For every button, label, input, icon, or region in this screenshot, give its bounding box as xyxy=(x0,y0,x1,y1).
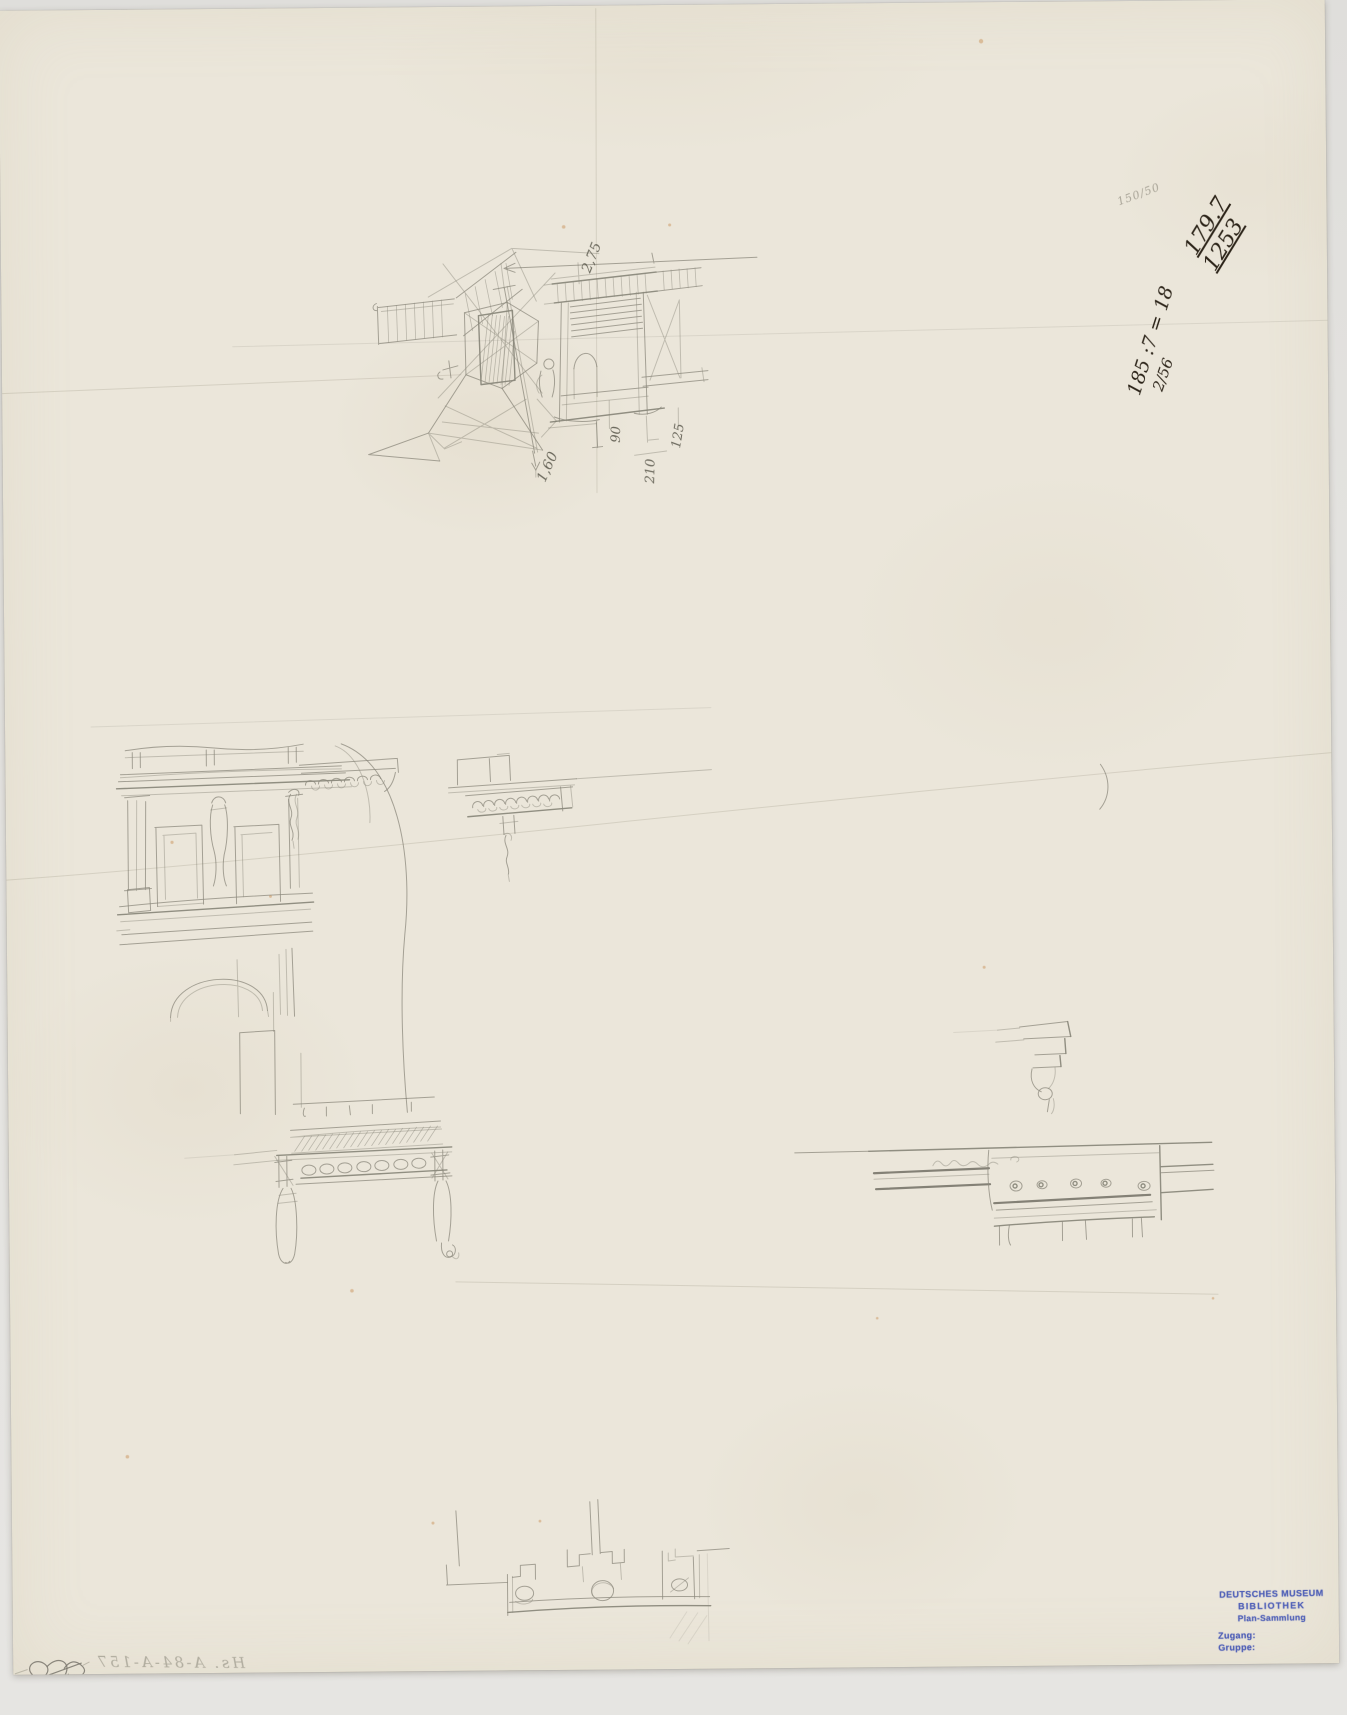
pencil-note-faint: 150/50 xyxy=(1116,180,1162,208)
stamp-line-4: Zugang: xyxy=(1218,1629,1326,1641)
stamp-line-3: Plan-Sammlung xyxy=(1218,1612,1326,1624)
paper-sheet: 150/50 179.7 1253 185 :7 = 18 2/56 2,75 … xyxy=(0,0,1339,1675)
dimension-label-overall-width: 2,75 xyxy=(579,240,605,275)
dimension-label-left-height: 1,60 xyxy=(534,450,561,485)
annotation-layer: 150/50 179.7 1253 185 :7 = 18 2/56 2,75 … xyxy=(0,0,1339,1675)
dimension-label-90: 90 xyxy=(609,426,624,443)
stamp-line-2: BIBLIOTHEK xyxy=(1218,1600,1326,1612)
dimension-label-125: 125 xyxy=(669,422,688,449)
verso-showthrough-text: Hs. A-84-A-157 xyxy=(95,1653,245,1672)
dimension-label-210: 210 xyxy=(643,459,659,484)
archive-stamp: DEUTSCHES MUSEUM BIBLIOTHEK Plan-Sammlun… xyxy=(1217,1588,1326,1653)
stamp-line-1: DEUTSCHES MUSEUM xyxy=(1217,1588,1325,1600)
stamp-line-5: Gruppe: xyxy=(1218,1641,1326,1653)
scan-background: 150/50 179.7 1253 185 :7 = 18 2/56 2,75 … xyxy=(0,0,1347,1715)
